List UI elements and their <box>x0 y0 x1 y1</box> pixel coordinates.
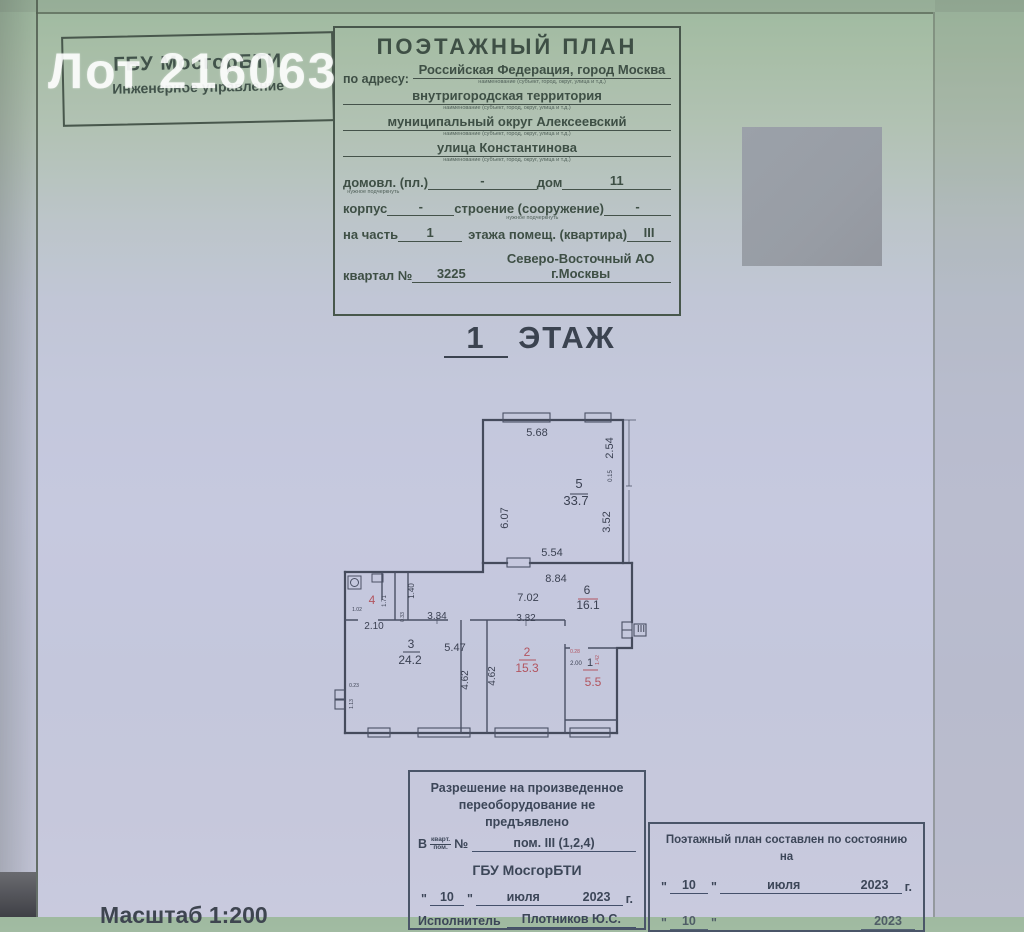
plan-label: 0.23 <box>349 683 359 689</box>
plan-label: 3 <box>408 637 415 651</box>
plan-label: 1.02 <box>352 607 362 613</box>
kvart-pom-fraction: кварт. пом. <box>430 837 451 851</box>
underline-caption: нужное подчеркнуть <box>507 215 559 221</box>
plan-label: 1.13 <box>349 699 355 709</box>
bathroom-fixtures <box>348 574 383 589</box>
stamp-org: ГБУ МосгорБТИ <box>418 862 636 878</box>
floor-heading: 1 ЭТАЖ <box>395 320 665 358</box>
dom-label: дом <box>537 175 563 190</box>
permission-stamp: Разрешение на произведенное переоборудов… <box>408 770 646 930</box>
plan-label: 33.7 <box>563 493 588 508</box>
month: июля <box>720 878 848 894</box>
address-label: по адресу: <box>343 72 413 86</box>
address-line-caption: наименование (субъект, город, округ, ули… <box>423 79 660 85</box>
stamp-date-row: " 10 " июля 2023 г. <box>658 878 915 894</box>
address-line-value: Российская Федерация, город Москва <box>413 62 671 79</box>
domovl-label: домовл. (пл.) <box>343 175 428 190</box>
plan-label: 5.54 <box>541 547 562 559</box>
address-line-value: улица Константинова <box>343 140 671 157</box>
stamp-room-row: В кварт. пом. № пом. III (1,2,4) <box>418 836 636 852</box>
day: 10 <box>430 890 464 906</box>
plan-label: 7.02 <box>517 592 538 604</box>
plan-date-stamp: Поэтажный план составлен по состоянию на… <box>648 822 925 932</box>
plan-label: 8.84 <box>545 573 566 585</box>
prefix: В <box>418 837 427 851</box>
address-line-caption: наименование (субъект, город, округ, ули… <box>356 131 658 137</box>
field-row-domovl: домовл. (пл.) нужное подчеркнуть - дом 1… <box>343 173 671 190</box>
num-label: № <box>454 837 468 851</box>
plan-label: 5.5 <box>585 675 602 689</box>
executor-row: Исполнитель Плотников Ю.С. <box>418 912 636 928</box>
plan-label: 2 <box>524 645 531 659</box>
address-row-4: улица Константинова наименование (субъек… <box>343 140 671 164</box>
plan-label: 2.00 <box>570 661 582 667</box>
plan-label: 2.54 <box>604 437 616 458</box>
address-row-1: по адресу: Российская Федерация, город М… <box>343 62 671 86</box>
plan-label: 1 <box>587 657 593 669</box>
address-line-caption: наименование (субъект, город, округ, ули… <box>356 157 658 163</box>
plan-label: 3.32 <box>516 613 536 624</box>
stamp-date-row: " 10 " июля 2023 г. <box>418 890 636 906</box>
plan-label: 0.15 <box>608 470 614 482</box>
kvartal-value: 3225 <box>412 266 490 283</box>
stamp-date-row-2: " 10 " 2023 <box>658 914 915 930</box>
plan-label: 6 <box>584 583 591 597</box>
plan-label: 2.10 <box>364 621 384 632</box>
stamp-line-2: переоборудование не предъявлено <box>418 797 636 831</box>
plan-label: 16.1 <box>576 598 600 612</box>
page-top-frame-line <box>36 12 933 14</box>
year-2: 2023 <box>861 914 915 930</box>
dom-value: 11 <box>562 173 671 190</box>
okrug-value: Северо-Восточный АО г.Москвы <box>490 251 671 283</box>
year-suffix: г. <box>902 880 915 894</box>
plan-label: 4.62 <box>487 666 498 686</box>
photo-right-shade <box>935 0 1024 917</box>
day-2: 10 <box>670 914 708 930</box>
plan-label: 1.42 <box>595 655 601 665</box>
plan-label: 4 <box>369 593 376 607</box>
address-row-3: муниципальный округ Алексеевский наимено… <box>343 114 671 138</box>
address-line-value: внутригородская территория <box>343 88 671 105</box>
plan-label: 5.47 <box>444 642 465 654</box>
etazha-value: III <box>627 225 671 242</box>
underline-caption: нужное подчеркнуть <box>347 189 399 195</box>
photo-top-shade <box>0 0 1024 12</box>
year-suffix: г. <box>623 892 636 906</box>
address-row-2: внутригородская территория наименование … <box>343 88 671 112</box>
korpus-label: корпус <box>343 201 387 216</box>
address-line-value: муниципальный округ Алексеевский <box>343 114 671 131</box>
scale-label: Масштаб 1:200 <box>100 902 268 929</box>
plan-label: 4.62 <box>460 670 471 690</box>
plan-label: III <box>637 624 645 635</box>
floor-number: 1 <box>444 320 507 358</box>
etazha-label: этажа помещ. (квартира) <box>462 227 627 242</box>
na-chast-value: 1 <box>398 225 462 242</box>
year: 2023 <box>571 890 623 906</box>
plan-label: 0.28 <box>570 649 580 655</box>
photo-dark-corner <box>0 872 36 917</box>
page-left-edge <box>0 0 38 917</box>
month: июля <box>476 890 571 906</box>
document-title: ПОЭТАЖНЫЙ ПЛАН <box>343 34 671 60</box>
field-row-korpus: корпус - строение (сооружение) нужное по… <box>343 199 671 216</box>
address-line-caption: наименование (субъект, город, округ, ули… <box>356 105 658 111</box>
field-row-chast: на часть 1 этажа помещ. (квартира) III <box>343 225 671 242</box>
stroenie-label: строение (сооружение) <box>454 201 604 216</box>
plan-label: 5 <box>575 476 582 491</box>
executor-label: Исполнитель <box>418 914 501 928</box>
plan-label: 1.40 <box>407 583 416 599</box>
field-row-kvartal: квартал № 3225 Северо-Восточный АО г.Мос… <box>343 251 671 283</box>
domovl-value: - <box>428 173 537 190</box>
floor-plan-drawing: 5.682.540.153.526.07533.75.548.847.02616… <box>330 398 700 743</box>
plan-label: 3.52 <box>601 511 613 532</box>
plan-label: 24.2 <box>398 653 422 667</box>
stamp-line-1: Разрешение на произведенное <box>418 780 636 797</box>
kvartal-label: квартал № <box>343 268 412 283</box>
room-value: пом. III (1,2,4) <box>472 836 636 852</box>
plan-label: 15.3 <box>515 661 539 675</box>
plan-label: 5.68 <box>526 427 547 439</box>
floor-label: ЭТАЖ <box>518 320 615 355</box>
day: 10 <box>670 878 708 894</box>
stamp-title: Поэтажный план составлен по состоянию на <box>658 832 915 866</box>
year: 2023 <box>848 878 902 894</box>
plan-label: 6.07 <box>499 507 511 528</box>
redaction-square <box>742 127 882 266</box>
title-block: ПОЭТАЖНЫЙ ПЛАН по адресу: Российская Фед… <box>333 26 681 316</box>
plan-label: 0.33 <box>400 612 406 622</box>
plan-label: 1.71 <box>382 595 388 607</box>
korpus-value: - <box>387 199 454 216</box>
lot-watermark: Лот 216063 <box>48 42 338 100</box>
page-right-frame-line <box>933 12 935 917</box>
executor-value: Плотников Ю.С. <box>507 912 636 928</box>
plan-label: 3.34 <box>427 611 447 622</box>
na-chast-label: на часть <box>343 227 398 242</box>
stroenie-value: - <box>604 199 671 216</box>
